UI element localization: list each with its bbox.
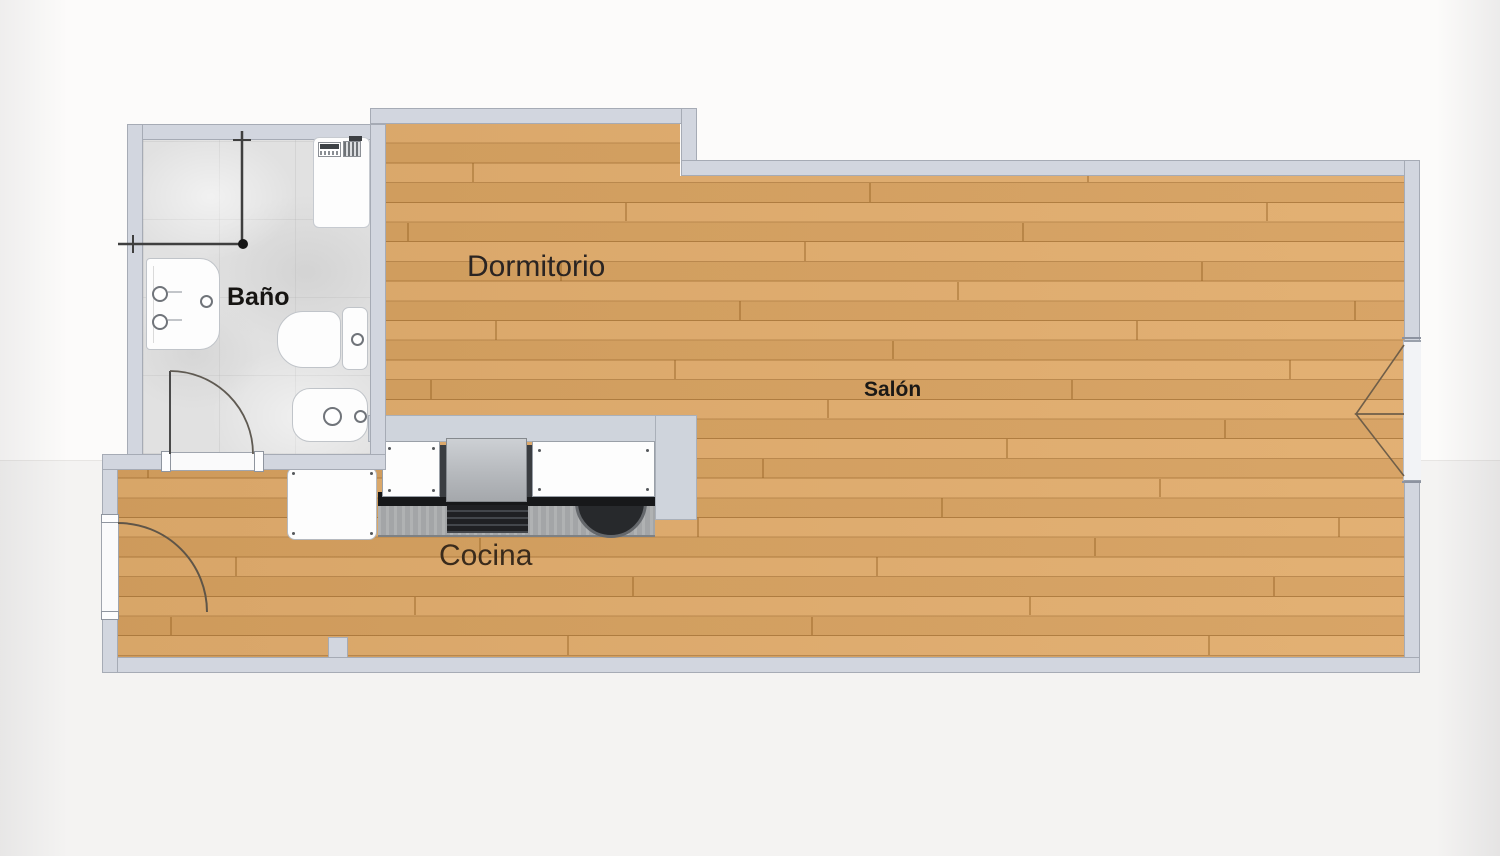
bathroom-door-post-right [254, 451, 264, 472]
plank-joint [674, 360, 676, 379]
kitchen-appliance [446, 438, 527, 502]
cabinet-screw [538, 449, 541, 452]
plank-joint [430, 380, 432, 399]
plank-joint [414, 597, 416, 616]
cabinet-screw [646, 488, 649, 491]
plank-joint [170, 617, 172, 636]
plank-joint [892, 341, 894, 360]
washer-detergent-tray [343, 141, 361, 157]
cabinet-screw [538, 488, 541, 491]
toilet-flush-button [351, 333, 364, 346]
wall-pillar [328, 637, 348, 657]
plank-joint [811, 617, 813, 636]
faucet-spout-top [168, 291, 182, 293]
room-label-dormitorio: Dormitorio [467, 250, 605, 284]
cabinet-screw [370, 472, 373, 475]
plank-joint [1071, 380, 1073, 399]
plank-joint [632, 577, 634, 596]
cabinet-screw [646, 449, 649, 452]
bathroom-door-threshold [161, 452, 264, 471]
plank-joint [869, 183, 871, 202]
entrance-door-post-bottom [101, 611, 119, 620]
plank-joint [1354, 301, 1356, 320]
plank-joint [1208, 636, 1210, 655]
background-left-shade [0, 0, 80, 856]
plank-joint [1094, 538, 1096, 557]
plank-joint [495, 321, 497, 340]
plank-joint [1136, 321, 1138, 340]
kitchen-cabinet-right [532, 441, 655, 497]
vanity-edge-line [153, 266, 154, 343]
cabinet-screw [370, 532, 373, 535]
wall-bathroom-left [127, 124, 143, 470]
plank-joint [1201, 262, 1203, 281]
kitchen-partition-wall [368, 415, 697, 442]
cooktop [447, 505, 528, 533]
room-label-salon: Salón [864, 378, 921, 402]
plank-joint [1224, 420, 1226, 439]
plank-joint [941, 498, 943, 517]
faucet-knob-bottom [152, 314, 168, 330]
plank-joint [697, 518, 699, 537]
plank-joint [1006, 439, 1008, 458]
plank-joint [1338, 518, 1340, 537]
balcony-window-frame [1403, 340, 1421, 482]
plank-joint [804, 242, 806, 261]
plank-joint [235, 557, 237, 576]
plank-joint [1029, 597, 1031, 616]
plank-joint [472, 163, 474, 182]
plank-joint [876, 557, 878, 576]
bidet-faucet [354, 410, 367, 423]
plank-joint [957, 282, 959, 301]
background-right-shade [1425, 0, 1500, 856]
bathroom-door-post-left [161, 451, 171, 472]
washer-top-vent [349, 136, 362, 141]
plank-joint [1289, 360, 1291, 379]
plank-joint [1022, 223, 1024, 242]
toilet-bowl [277, 311, 341, 368]
washer-buttons [320, 151, 339, 155]
bidet-drain [323, 407, 342, 426]
entrance-door-threshold [101, 514, 119, 620]
wall-bottom [102, 657, 1420, 673]
plank-joint [567, 636, 569, 655]
wall-bedroom-top [370, 108, 697, 124]
cabinet-screw [432, 447, 435, 450]
room-label-bano: Baño [227, 283, 290, 312]
plank-joint [762, 459, 764, 478]
plank-joint [407, 223, 409, 242]
wall-bathroom-right [370, 124, 386, 470]
plank-joint [1273, 577, 1275, 596]
sink-drain [200, 295, 213, 308]
floorplan-canvas: Dormitorio Baño Salón Cocina [0, 0, 1500, 856]
plank-joint [739, 301, 741, 320]
cabinet-screw [388, 447, 391, 450]
faucet-spout-bottom [168, 319, 182, 321]
kitchen-partition-return [655, 415, 697, 520]
plank-joint [625, 203, 627, 222]
plank-joint [827, 400, 829, 419]
cabinet-screw [432, 489, 435, 492]
room-label-cocina: Cocina [439, 539, 532, 573]
plank-joint [1266, 203, 1268, 222]
cabinet-screw [292, 532, 295, 535]
kitchen-table [287, 467, 377, 540]
entrance-door-post-top [101, 514, 119, 523]
wall-livingroom-top [681, 160, 1420, 176]
washer-display [320, 144, 339, 149]
faucet-knob-top [152, 286, 168, 302]
cabinet-screw [388, 489, 391, 492]
plank-joint [1159, 479, 1161, 498]
cabinet-screw [292, 472, 295, 475]
